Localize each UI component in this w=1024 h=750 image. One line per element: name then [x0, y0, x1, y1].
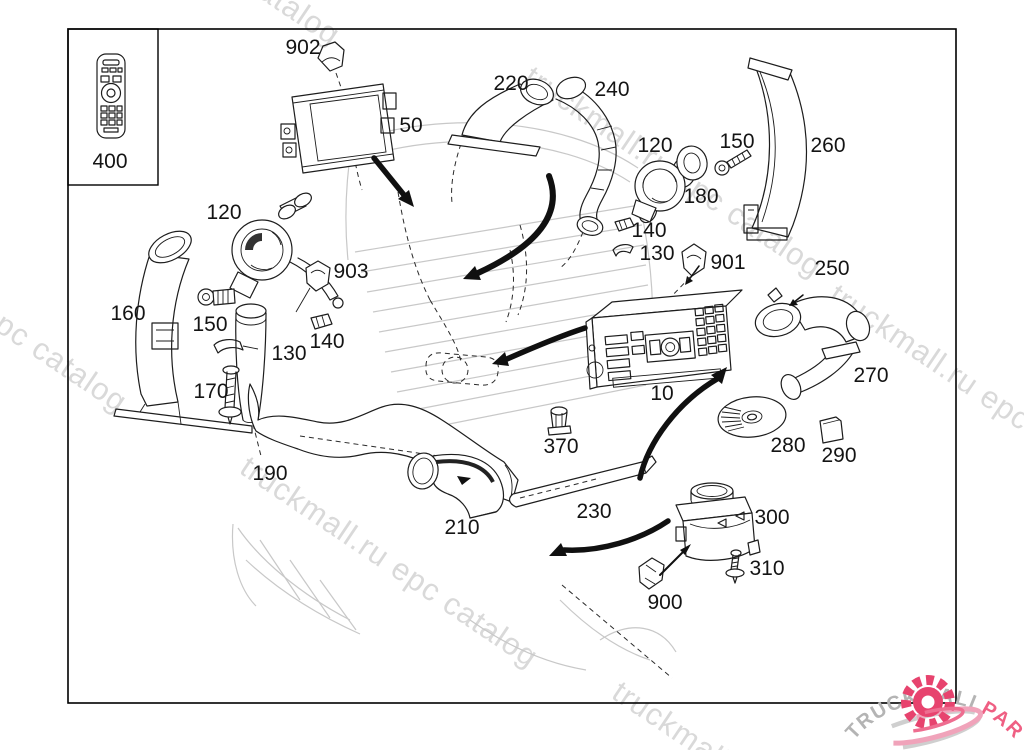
- part-label-170[interactable]: 170: [193, 380, 228, 403]
- part-label-230[interactable]: 230: [576, 500, 611, 523]
- part-300-control-unit: [676, 483, 760, 560]
- part-label-150-right[interactable]: 150: [719, 130, 754, 153]
- part-270-elbow-duct: [777, 342, 860, 403]
- part-label-10[interactable]: 10: [650, 382, 673, 405]
- part-label-260[interactable]: 260: [810, 134, 845, 157]
- part-label-903[interactable]: 903: [333, 260, 368, 283]
- part-label-240[interactable]: 240: [594, 78, 629, 101]
- part-label-180[interactable]: 180: [683, 185, 718, 208]
- part-label-280[interactable]: 280: [770, 434, 805, 457]
- part-label-140-left[interactable]: 140: [309, 330, 344, 353]
- part-label-140-right[interactable]: 140: [631, 219, 666, 242]
- part-label-220[interactable]: 220: [493, 72, 528, 95]
- part-label-370[interactable]: 370: [543, 435, 578, 458]
- part-290-memory-card: [820, 417, 843, 443]
- watermark-text: truckmall.ru epc catalog: [606, 674, 917, 750]
- part-140-clip-left: [311, 314, 332, 329]
- part-900-clip: [639, 544, 691, 589]
- part-902-clip: [318, 42, 344, 96]
- part-150-screw-right: [715, 150, 751, 175]
- part-label-130-right[interactable]: 130: [639, 242, 674, 265]
- part-label-160[interactable]: 160: [110, 302, 145, 325]
- part-label-210[interactable]: 210: [444, 516, 479, 539]
- part-150-screw-left: [198, 289, 235, 305]
- part-label-902[interactable]: 902: [285, 36, 320, 59]
- part-label-270[interactable]: 270: [853, 364, 888, 387]
- part-label-120-left[interactable]: 120: [206, 201, 241, 224]
- part-label-150-left[interactable]: 150: [192, 313, 227, 336]
- remote-control-400-illustration: [97, 54, 125, 138]
- part-label-50[interactable]: 50: [399, 114, 422, 137]
- part-370-sensor: [548, 407, 571, 435]
- part-label-190[interactable]: 190: [252, 462, 287, 485]
- part-label-250[interactable]: 250: [814, 257, 849, 280]
- part-label-400[interactable]: 400: [92, 150, 127, 173]
- part-label-300[interactable]: 300: [754, 506, 789, 529]
- exploded-parts-diagram: truckmall.ru epc catalogtruckmall.ru epc…: [0, 0, 1024, 750]
- part-label-290[interactable]: 290: [821, 444, 856, 467]
- part-120-blower-left: [230, 190, 343, 308]
- part-label-130-left[interactable]: 130: [271, 342, 306, 365]
- part-label-120-right[interactable]: 120: [637, 134, 672, 157]
- parts-catalog-page: truckmall.ru epc catalogtruckmall.ru epc…: [0, 0, 1024, 750]
- part-label-901[interactable]: 901: [710, 251, 745, 274]
- part-label-900[interactable]: 900: [647, 591, 682, 614]
- part-label-310[interactable]: 310: [749, 557, 784, 580]
